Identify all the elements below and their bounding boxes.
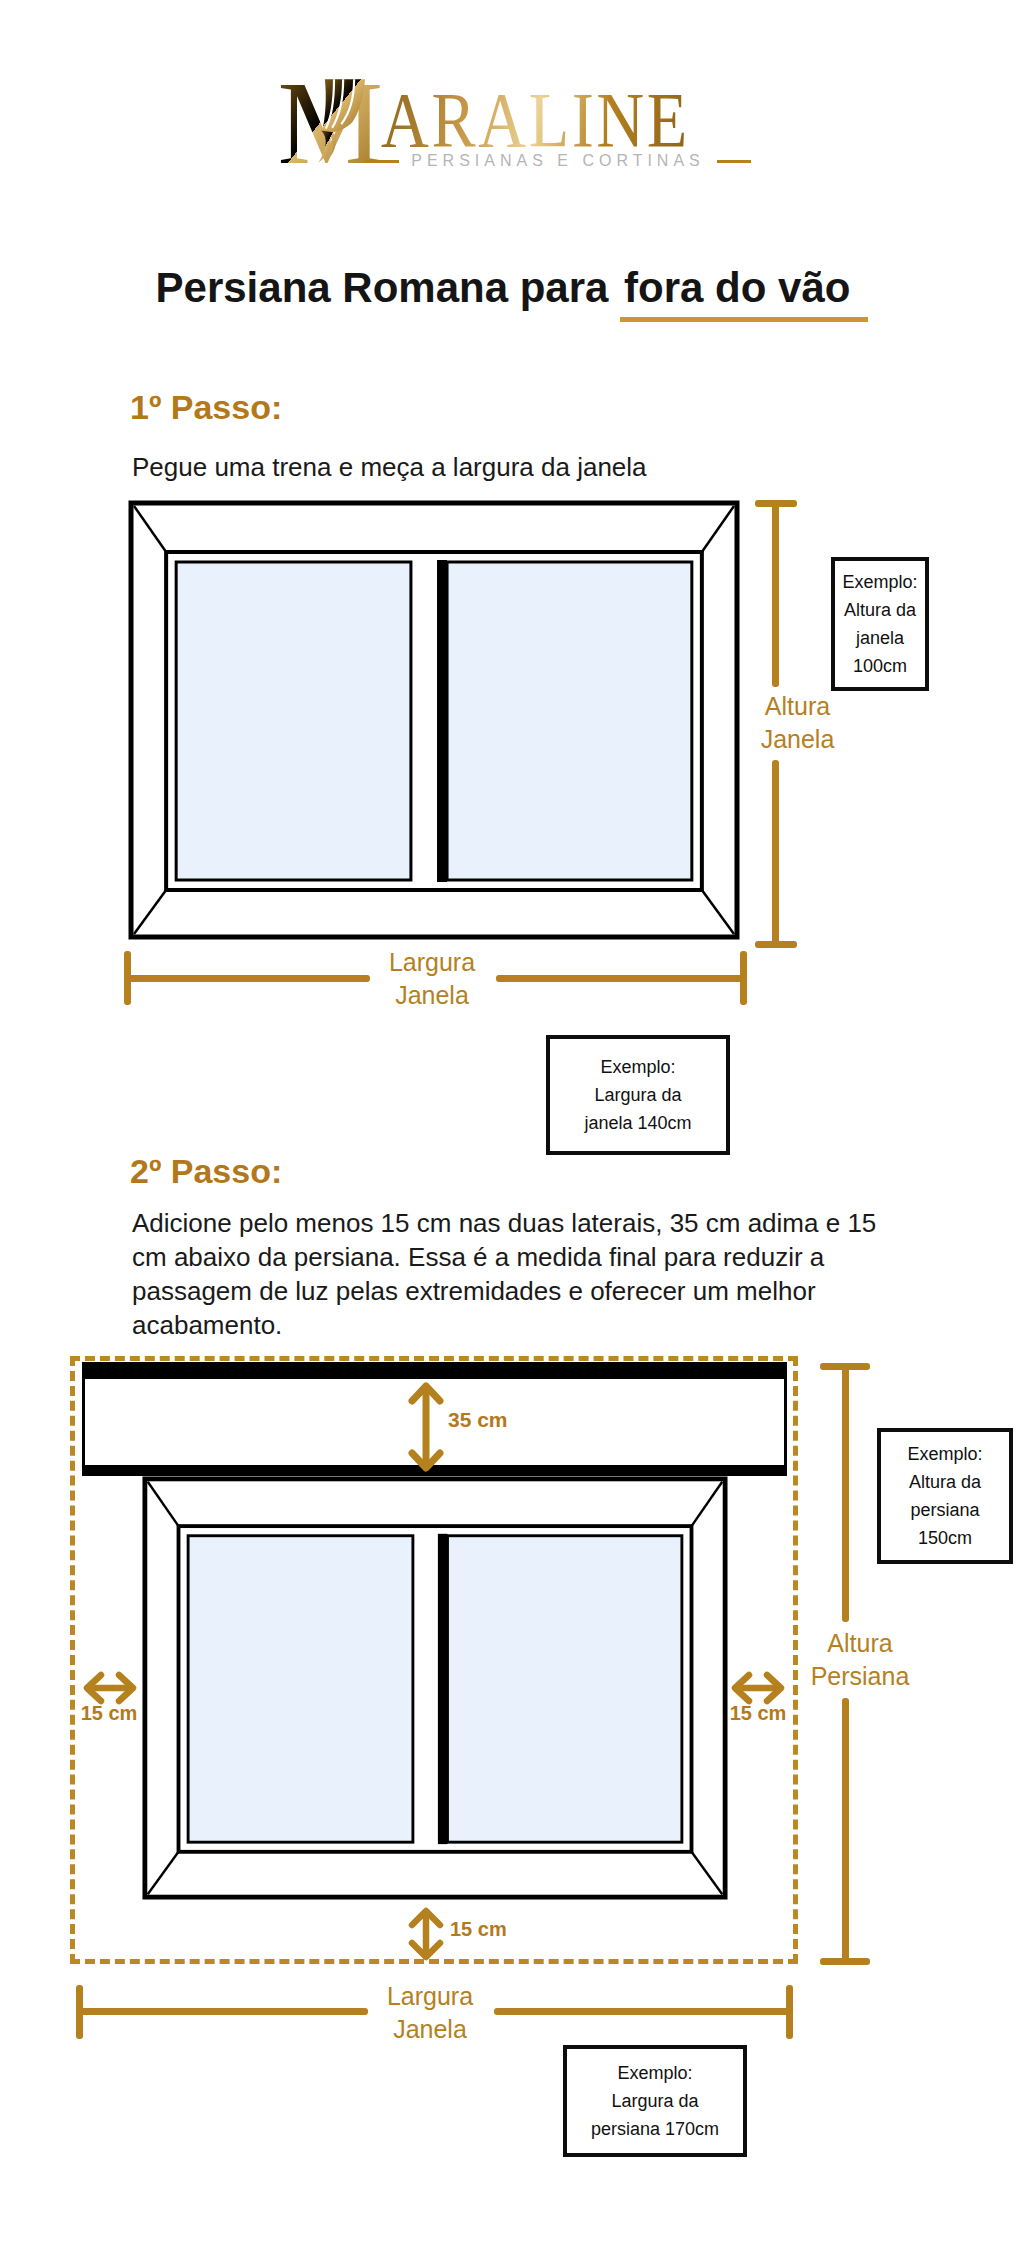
d1-width-line-right-seg <box>496 975 742 982</box>
example-line: Largura da <box>594 1081 681 1109</box>
example-line: 100cm <box>853 652 907 680</box>
example-line: persiana 170cm <box>591 2115 719 2143</box>
example-line: 150cm <box>918 1524 972 1552</box>
example-line: persiana <box>910 1496 979 1524</box>
step2-line: cm abaixo da persiana. Essa é a medida f… <box>132 1240 902 1274</box>
d2-height-line-upper <box>842 1363 849 1622</box>
example-line: janela <box>856 624 904 652</box>
example-line: Exemplo: <box>842 568 917 596</box>
d1-width-label: Largura Janela <box>368 946 496 1012</box>
d2-height-line-bottom-cap <box>820 1958 870 1965</box>
arrow-15cm-left-icon <box>82 1670 138 1706</box>
example-line: Exemplo: <box>617 2059 692 2087</box>
d2-width-line-right-seg <box>494 2008 793 2015</box>
d2-width-label-line1: Largura <box>366 1980 494 2013</box>
d2-width-line-right-cap <box>786 1985 793 2039</box>
d1-height-label-line1: Altura <box>730 690 865 723</box>
d2-width-label: Largura Janela <box>366 1980 494 2046</box>
step2-line: Adicione pelo menos 15 cm nas duas later… <box>132 1206 902 1240</box>
arrow-35cm-icon <box>406 1381 446 1473</box>
tagline-left-dash <box>365 160 399 163</box>
example-line: janela 140cm <box>584 1109 691 1137</box>
d1-width-line-left-seg <box>124 975 370 982</box>
d1-width-label-line2: Janela <box>368 979 496 1012</box>
example-line: Altura da <box>909 1468 981 1496</box>
arrow-15cm-bottom-icon <box>406 1906 446 1962</box>
d1-height-example-box: Exemplo: Altura da janela 100cm <box>831 557 929 691</box>
example-line: Exemplo: <box>907 1440 982 1468</box>
step2-line: passagem de luz pelas extremidades e ofe… <box>132 1274 902 1308</box>
page-title: Persiana Romana para fora do vão <box>0 264 1024 312</box>
d2-height-example-box: Exemplo: Altura da persiana 150cm <box>877 1428 1013 1564</box>
step1-heading: 1º Passo: <box>130 388 282 427</box>
d2-bottom-margin-label: 15 cm <box>450 1918 507 1941</box>
brand-logo: M ARALINE PERSIANAS E CORTINAS <box>0 72 1024 170</box>
d2-right-margin-label: 15 cm <box>725 1702 791 1725</box>
step2-line: acabamento. <box>132 1308 902 1342</box>
d2-width-example-box: Exemplo: Largura da persiana 170cm <box>563 2045 747 2157</box>
page-title-underlined: fora do vão <box>620 264 868 322</box>
d2-height-line-lower <box>842 1698 849 1962</box>
d2-top-margin-label: 35 cm <box>448 1408 508 1432</box>
step2-heading: 2º Passo: <box>130 1152 282 1191</box>
d1-width-label-line1: Largura <box>368 946 496 979</box>
step1-description: Pegue uma trena e meça a largura da jane… <box>132 450 647 484</box>
example-line: Exemplo: <box>600 1053 675 1081</box>
step2-description: Adicione pelo menos 15 cm nas duas later… <box>132 1206 902 1342</box>
d1-height-line-lower <box>772 760 779 945</box>
window-illustration-2 <box>142 1476 728 1900</box>
d2-height-label-line2: Persiana <box>790 1660 930 1693</box>
d1-height-line-upper <box>772 500 779 687</box>
d1-width-example-box: Exemplo: Largura da janela 140cm <box>546 1035 730 1155</box>
d1-width-line-right-cap <box>740 951 747 1005</box>
example-line: Altura da <box>844 596 916 624</box>
d2-height-label-line1: Altura <box>790 1627 930 1660</box>
tagline-right-dash <box>717 160 751 163</box>
brand-tagline: PERSIANAS E CORTINAS <box>411 152 705 170</box>
d2-height-label: Altura Persiana <box>790 1627 930 1693</box>
d1-height-line-bottom-cap <box>755 941 797 948</box>
d2-width-label-line2: Janela <box>366 2013 494 2046</box>
window-illustration-1 <box>128 500 740 940</box>
d1-height-label-line2: Janela <box>730 723 865 756</box>
brand-tagline-row: PERSIANAS E CORTINAS <box>365 152 751 170</box>
d2-left-margin-label: 15 cm <box>76 1702 142 1725</box>
d2-width-line-left-seg <box>76 2008 368 2015</box>
example-line: Largura da <box>611 2087 698 2115</box>
page-title-plain: Persiana Romana para <box>156 264 621 311</box>
d1-height-label: Altura Janela <box>730 690 865 756</box>
arrow-15cm-right-icon <box>730 1670 786 1706</box>
infographic-page: M ARALINE PERSIANAS E CORTINAS Persiana … <box>0 0 1024 2245</box>
